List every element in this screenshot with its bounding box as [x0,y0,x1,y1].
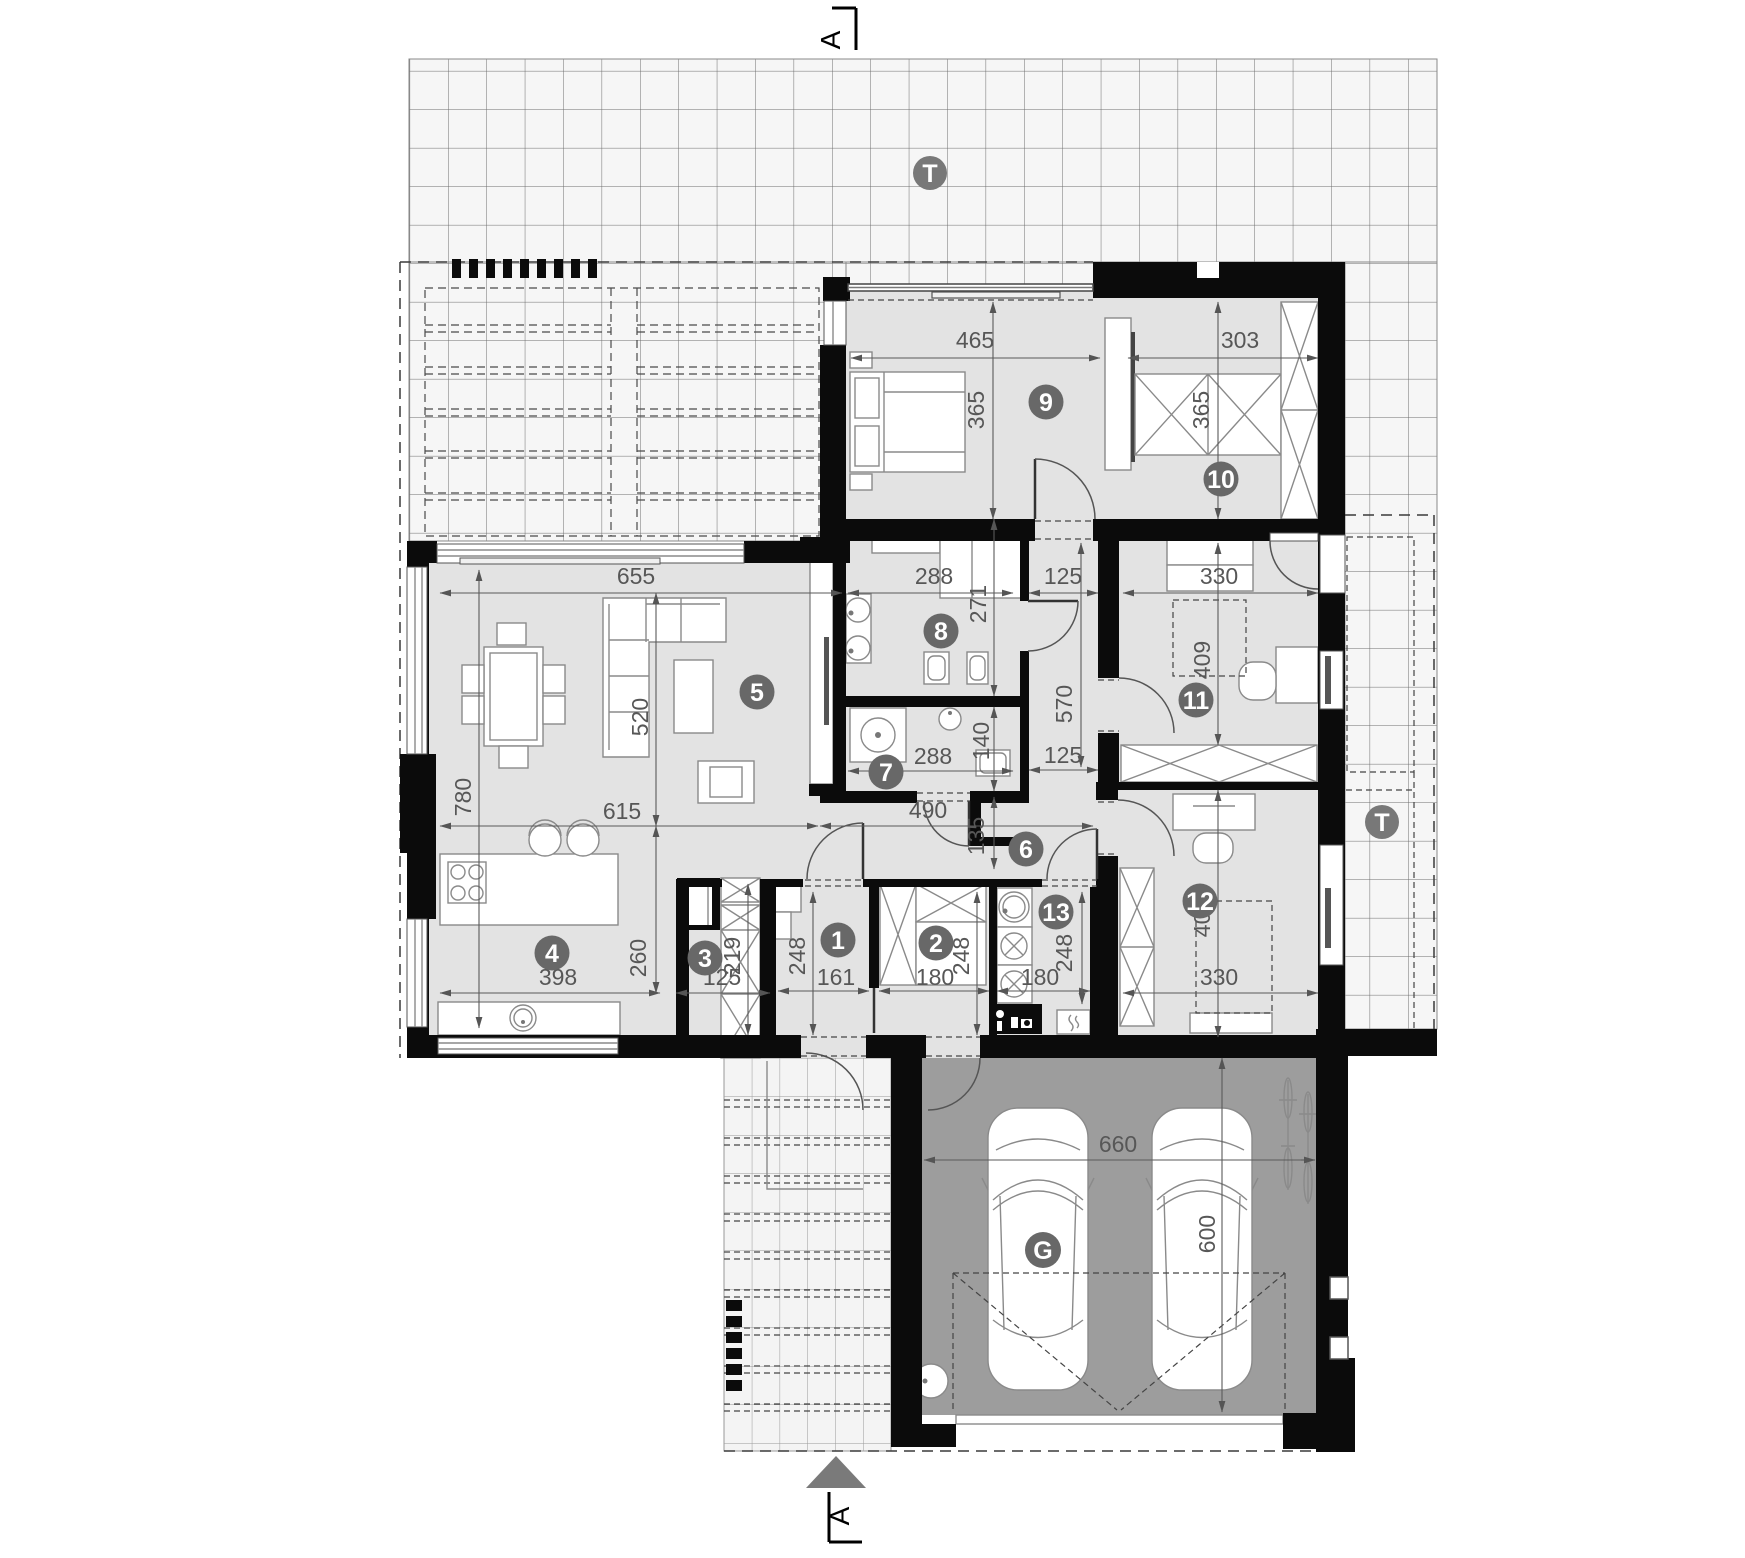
svg-text:7: 7 [879,759,893,787]
svg-text:219: 219 [719,937,745,975]
svg-text:A: A [824,1506,855,1525]
svg-text:600: 600 [1194,1215,1220,1253]
svg-text:780: 780 [450,778,476,816]
svg-text:271: 271 [965,585,991,623]
svg-text:9: 9 [1039,389,1053,417]
svg-text:4: 4 [545,940,559,968]
svg-text:409: 409 [1189,641,1215,679]
svg-text:490: 490 [909,797,947,823]
svg-text:330: 330 [1200,563,1238,589]
svg-text:465: 465 [956,327,994,353]
svg-text:T: T [1374,809,1389,837]
svg-text:125: 125 [1044,563,1082,589]
svg-text:248: 248 [784,937,810,975]
svg-text:11: 11 [1183,687,1210,715]
svg-text:6: 6 [1019,836,1033,864]
svg-text:520: 520 [627,698,653,736]
svg-text:A: A [815,30,846,49]
svg-text:615: 615 [603,798,641,824]
svg-text:365: 365 [963,391,989,429]
svg-text:365: 365 [1188,391,1214,429]
svg-text:2: 2 [929,930,943,958]
svg-text:10: 10 [1207,466,1235,494]
svg-text:303: 303 [1221,327,1259,353]
svg-text:140: 140 [968,722,994,760]
svg-text:570: 570 [1051,685,1077,723]
svg-text:125: 125 [1044,742,1082,768]
svg-text:G: G [1033,1237,1052,1265]
svg-text:135: 135 [963,817,989,855]
svg-text:1: 1 [831,927,845,955]
svg-text:260: 260 [625,939,651,977]
svg-text:248: 248 [1051,934,1077,972]
svg-text:13: 13 [1042,899,1070,927]
svg-text:161: 161 [817,964,855,990]
svg-text:12: 12 [1186,888,1214,916]
svg-text:288: 288 [914,743,952,769]
svg-text:8: 8 [934,618,948,646]
svg-text:288: 288 [915,563,953,589]
svg-text:T: T [922,160,937,188]
svg-text:330: 330 [1200,964,1238,990]
svg-text:655: 655 [617,563,655,589]
svg-text:5: 5 [750,679,764,707]
svg-text:660: 660 [1099,1131,1137,1157]
svg-text:3: 3 [698,945,712,973]
